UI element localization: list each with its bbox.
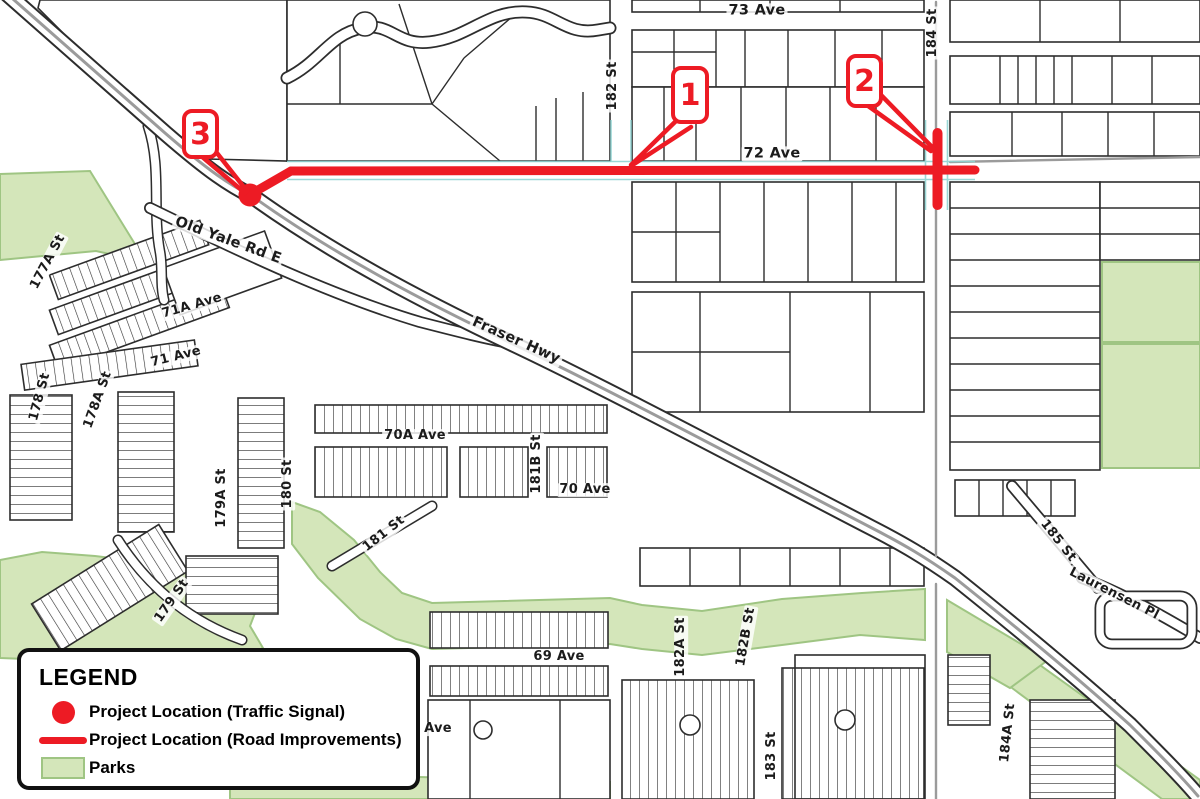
road-improvements-line-icon — [37, 737, 89, 744]
street-label-69-ave: 69 Ave — [531, 650, 586, 664]
street-label-182-st: 182 St — [606, 59, 620, 112]
street-label-180-st: 180 St — [281, 457, 295, 510]
parks-swatch-icon — [37, 757, 89, 779]
road-improvements-line — [291, 170, 975, 171]
legend-item-label: Parks — [89, 758, 135, 778]
legend-item-road-improvements: Project Location (Road Improvements) — [37, 727, 402, 753]
street-label-179a-st: 179A St — [215, 466, 229, 529]
legend-item-label: Project Location (Traffic Signal) — [89, 702, 345, 722]
callout-2-number: 2 — [854, 64, 875, 99]
street-label-73-ave: 73 Ave — [726, 3, 787, 18]
street-label-183-st: 183 St — [765, 729, 779, 782]
street-label-70a-ave: 70A Ave — [382, 429, 448, 443]
legend-item-traffic-signal: Project Location (Traffic Signal) — [37, 699, 402, 725]
street-label-72-ave: 72 Ave — [741, 146, 802, 161]
project-location-map: 73 Ave 182 St 184 St 72 Ave Old Yale Rd … — [0, 0, 1200, 799]
street-label-184-st: 184 St — [926, 6, 940, 59]
street-label-181b-st: 181B St — [530, 432, 544, 495]
legend-item-parks: Parks — [37, 755, 402, 781]
callout-2: 2 — [846, 54, 883, 108]
legend-title: LEGEND — [39, 664, 402, 691]
legend-item-label: Project Location (Road Improvements) — [89, 730, 402, 750]
legend: LEGEND Project Location (Traffic Signal)… — [17, 648, 420, 790]
callout-3-number: 3 — [190, 117, 211, 152]
street-label-182a-st: 182A St — [674, 615, 688, 678]
street-label-70-ave: 70 Ave — [557, 483, 612, 497]
callout-1-number: 1 — [680, 78, 701, 113]
street-label-ave-partial: Ave — [422, 722, 454, 736]
callout-3: 3 — [182, 109, 219, 159]
callout-1: 1 — [671, 66, 709, 124]
traffic-signal-dot-icon — [37, 701, 89, 724]
